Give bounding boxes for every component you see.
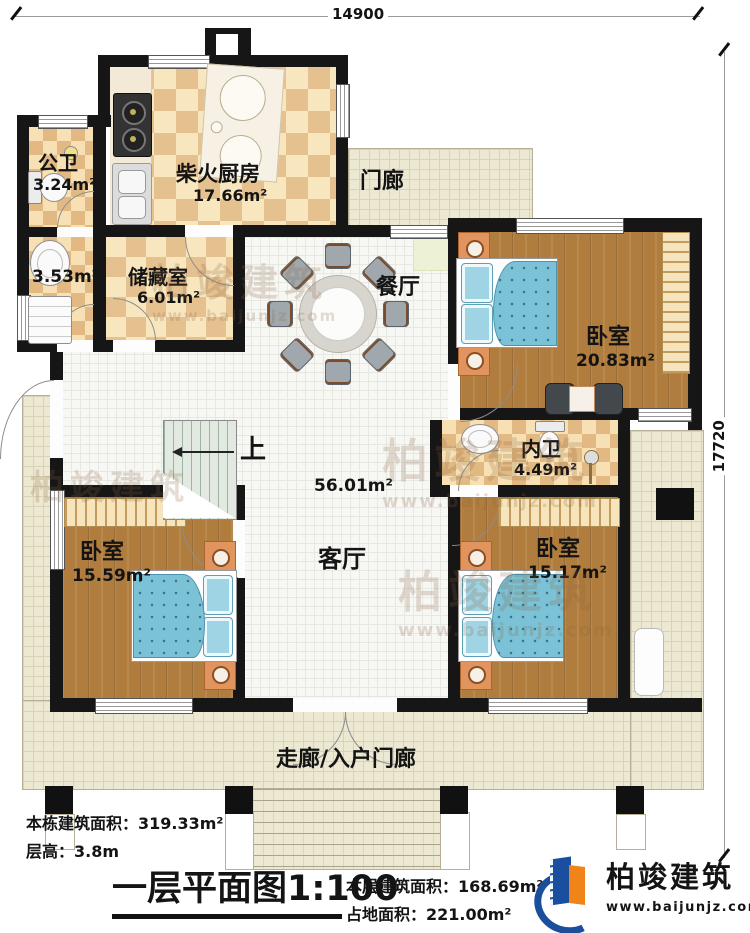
note-floor-area-value: 168.69m² [458, 877, 543, 896]
watermark: 柏竣建筑 www.baijunjz.com [382, 425, 598, 512]
deck-bench [634, 628, 664, 696]
watermark-url: www.baijunjz.com [398, 620, 614, 641]
window [38, 115, 88, 129]
side-table [569, 386, 595, 412]
mattress [493, 261, 557, 346]
logo-building-orange-icon [569, 865, 585, 905]
deck-column [656, 488, 694, 520]
note-total-area: 本栋建筑面积：319.33m² [26, 815, 223, 833]
door-swing [0, 380, 54, 459]
room-label-public-bath: 公卫 [38, 152, 78, 174]
room-area-kitchen: 17.66m² [193, 187, 267, 205]
watermark-url: www.baijunjz.com [382, 491, 598, 512]
window [148, 55, 210, 69]
armchair [593, 383, 623, 415]
watermark-url: www.baijunjz.com [152, 307, 337, 325]
door-opening [185, 225, 233, 237]
deck-right [630, 430, 704, 790]
room-area-public-bath: 3.24m² [33, 176, 96, 194]
title-text: 一层平面图 [112, 869, 287, 909]
stairs-arrow-line [182, 451, 234, 453]
sink-basin [118, 196, 146, 219]
room-label-living: 客厅 [318, 546, 366, 572]
watermark-name: 柏竣建筑 [398, 556, 614, 620]
dining-chair [325, 359, 351, 385]
door-mat [413, 237, 449, 271]
floor-plan: 公卫 3.24m² 3.53m² 柴火厨房 17.66m² 门廊 储藏室 6.0… [0, 0, 750, 933]
brand-logo [534, 856, 600, 926]
note-footprint: 占地面积：221.00m² [346, 906, 511, 924]
room-area-bedroom-sw: 15.59m² [72, 567, 151, 586]
main-entrance-opening [293, 698, 397, 712]
watermark: 柏竣建筑 www.baijunjz.com [398, 556, 614, 641]
burner-icon [122, 101, 146, 125]
dimension-width: 14900 [328, 6, 388, 23]
nightstand [460, 658, 492, 690]
wall [93, 127, 106, 352]
room-area-bedroom-ne: 20.83m² [576, 352, 655, 371]
stove-ring-icon [218, 73, 267, 122]
watermark: 柏竣建筑 www.baijunjz.com [152, 252, 337, 325]
step-rail-left [225, 812, 254, 870]
wardrobe [662, 232, 690, 374]
porch-column [225, 786, 253, 814]
burner-icon [122, 128, 146, 152]
note-floor-area-label: 本层建筑面积： [346, 877, 458, 896]
logo-building-blue-icon [550, 857, 571, 906]
stove-hole-icon [210, 121, 223, 134]
note-footprint-label: 占地面积： [346, 905, 426, 924]
window [95, 698, 193, 714]
pillow [461, 263, 493, 303]
dimension-tick [10, 6, 22, 20]
wall [688, 218, 702, 430]
brand-name: 柏竣建筑 [606, 862, 734, 894]
note-floor-area: 本层建筑面积：168.69m² [346, 878, 543, 896]
entry-steps [252, 788, 442, 870]
nightstand [458, 344, 490, 376]
room-label-bedroom-sw: 卧室 [80, 541, 124, 565]
porch-sliding-door [390, 225, 448, 239]
porch-column [616, 786, 644, 814]
window [336, 84, 350, 138]
dimension-tick [692, 6, 704, 20]
room-label-kitchen: 柴火厨房 [176, 163, 260, 186]
porch-column [440, 786, 468, 814]
room-label-entry-porch: 走廊/入户门廊 [276, 748, 416, 772]
wall [336, 55, 348, 237]
step-rail-right [440, 812, 470, 870]
stairs-up-label: 上 [240, 436, 266, 465]
sink-basin [118, 170, 146, 194]
column-base [616, 814, 646, 850]
chimney-flue [216, 34, 238, 55]
kitchen-sink [112, 163, 152, 225]
note-floor-height-label: 层高： [26, 842, 74, 861]
room-label-bedroom-ne: 卧室 [586, 326, 630, 350]
room-area-side-room: 3.53m² [32, 268, 99, 287]
gas-stove [113, 93, 152, 157]
dining-chair [383, 301, 409, 327]
note-total-area-value: 319.33m² [138, 814, 223, 833]
wall [618, 420, 630, 712]
burner-center [130, 136, 136, 142]
window [516, 218, 624, 234]
watermark-name: 柏竣建筑 [30, 460, 190, 509]
note-floor-height: 层高：3.8m [26, 843, 119, 861]
room-label-porch: 门廊 [360, 170, 404, 194]
window [638, 408, 692, 422]
nightstand [204, 658, 236, 690]
nightstand [204, 541, 236, 573]
mattress [133, 574, 205, 658]
window [488, 698, 588, 714]
note-total-area-label: 本栋建筑面积： [26, 814, 138, 833]
door-opening [113, 340, 155, 352]
porch-column [45, 786, 73, 814]
washer-icon [28, 296, 72, 344]
title-underline [112, 914, 342, 919]
note-floor-height-value: 3.8m [74, 842, 119, 861]
note-footprint-value: 221.00m² [426, 905, 511, 924]
burner-center [130, 109, 136, 115]
stairs-arrow-head [172, 447, 182, 457]
pillow [461, 304, 493, 344]
brand-website: www.baijunjz.com [606, 901, 750, 915]
watermark: 柏竣建筑 [30, 460, 190, 509]
room-label-dining: 餐厅 [376, 276, 420, 300]
watermark-name: 柏竣建筑 [382, 425, 598, 491]
dimension-height: 17720 [711, 417, 728, 475]
pillow [203, 575, 233, 615]
door-opening [57, 227, 93, 237]
pillow [203, 617, 233, 657]
watermark-name: 柏竣建筑 [152, 252, 337, 307]
